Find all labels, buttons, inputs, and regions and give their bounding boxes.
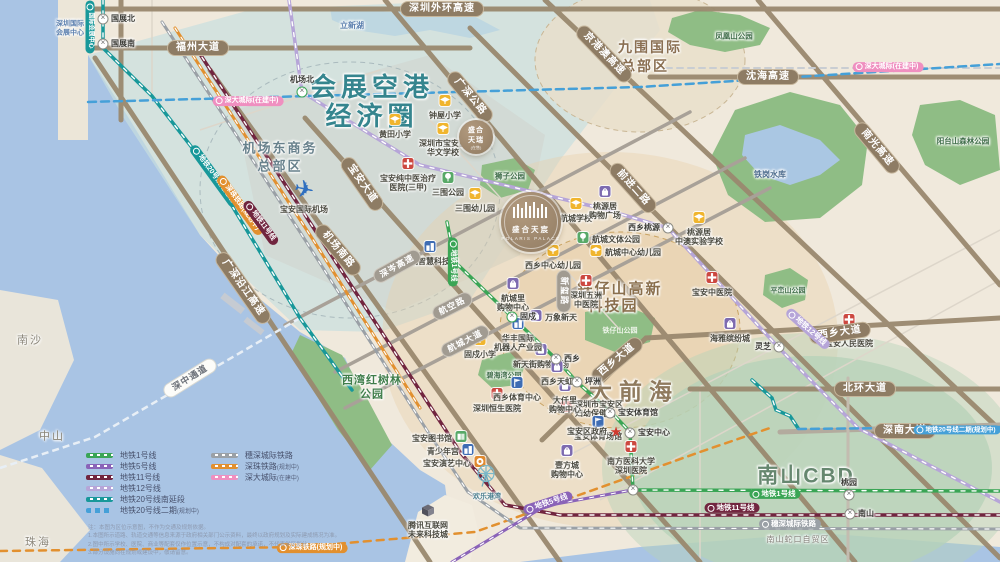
legend-label: 穗深城际铁路 xyxy=(245,450,293,461)
metro-line-badge: 地铁1号线 xyxy=(448,238,458,287)
road-badge: 新玺路 xyxy=(557,270,572,313)
metro-icon xyxy=(762,521,769,528)
poi-park-icon[interactable] xyxy=(577,231,590,249)
station-label: 机场北 xyxy=(290,76,314,84)
legend-column-rail: 穗深城际铁路深珠铁路(规划中)深大城际(在建中) xyxy=(211,450,299,516)
poi-label: 航城里 xyxy=(501,295,525,303)
legend-item: 地铁12号线 xyxy=(86,483,199,493)
map-label: 机场东商务 xyxy=(242,142,317,155)
metro-line-badge: 穗深城际铁路 xyxy=(759,519,821,529)
metro-station[interactable]: ✕ xyxy=(605,408,616,419)
legend-sublabel: (规划中) xyxy=(177,506,199,515)
legend-label: 深大城际 xyxy=(245,472,277,483)
legend-disclaimer: 注：本图为区位示意图，不作为交通及规划依据。1.本图所示道路、轨道交通等信息来源… xyxy=(88,524,340,557)
legend-line-swatch xyxy=(86,464,113,469)
poi-label: 航城学校 xyxy=(560,215,592,223)
station-label: 灵芝 xyxy=(755,343,771,351)
metro-station[interactable]: ✕ xyxy=(98,39,109,50)
road-badge: 沈海高速 xyxy=(737,69,799,85)
metro-station[interactable]: ✕ xyxy=(507,312,518,323)
station-label: 南山 xyxy=(858,510,874,518)
legend-item: 地铁1号线 xyxy=(86,450,199,460)
poi-label: 固戍小学 xyxy=(464,351,496,359)
legend-line-swatch xyxy=(86,508,113,513)
legend-line-swatch xyxy=(86,497,113,502)
metro-icon xyxy=(525,504,534,513)
poi-label: 西乡天虹 xyxy=(541,378,573,386)
map-label: 铁岗水库 xyxy=(754,171,786,179)
metro-line-badge: 国际会展中心 xyxy=(86,0,95,53)
poi-label: 黄田小学 xyxy=(379,131,411,139)
station-label: 宝安中心 xyxy=(638,429,670,437)
poi-label: 西乡中心幼儿园 xyxy=(525,262,581,270)
station-label: 宝安体育馆 xyxy=(618,409,658,417)
poi-mall-icon[interactable] xyxy=(561,444,574,462)
poi-label: 医院(三甲) xyxy=(389,184,426,192)
poi-label: 西乡体育中心 xyxy=(493,394,541,402)
map-label: 平峦山公园 xyxy=(771,288,806,295)
metro-station[interactable]: ✕ xyxy=(844,490,855,501)
poi-label: 航城文体公园 xyxy=(592,236,640,244)
poi-mall-icon[interactable] xyxy=(724,317,737,335)
map-label: 中山 xyxy=(39,432,65,443)
poi-label: 未来科技城 xyxy=(408,531,448,539)
metro-icon xyxy=(752,491,759,498)
poi-label: 深圳五洲 xyxy=(570,292,602,300)
project-name-en: POLARIS PALACE xyxy=(501,236,561,241)
poi-label: 深圳恒生医院 xyxy=(473,405,521,413)
metro-station[interactable]: ✕ xyxy=(551,354,562,365)
poi-hospital-icon[interactable] xyxy=(580,274,593,292)
poi-mall-icon[interactable] xyxy=(599,185,612,203)
metro-station[interactable]: ✕ xyxy=(845,509,856,520)
legend-line-swatch xyxy=(86,475,113,480)
legend-item: 地铁5号线 xyxy=(86,461,199,471)
metro-icon xyxy=(450,241,457,248)
metro-station[interactable]: ✕ xyxy=(297,87,308,98)
metro-line-badge: 地铁11号线 xyxy=(705,503,760,513)
poi-label: 购物广场 xyxy=(589,212,621,220)
poi-building-icon[interactable] xyxy=(424,240,437,258)
metro-icon xyxy=(245,202,255,212)
poi-label: 深圳医院 xyxy=(615,467,647,475)
poi-school-icon[interactable] xyxy=(547,244,560,262)
disclaimer-line: 3.部分设施尚在规划或建设中，敬请留意。 xyxy=(88,549,340,557)
metro-icon xyxy=(191,147,201,157)
sub-project-status: (在售) xyxy=(459,145,493,151)
metro-station[interactable]: ✕ xyxy=(663,223,674,234)
map-label: 南沙 xyxy=(17,336,43,347)
poi-label: 购物中心 xyxy=(549,406,581,414)
metro-icon xyxy=(218,177,228,187)
legend-label: 地铁5号线 xyxy=(120,461,156,472)
disclaimer-line: 注：本图为区位示意图，不作为交通及规划依据。 xyxy=(88,524,340,532)
poi-school-icon[interactable] xyxy=(693,211,706,229)
legend-item: 地铁20号线南延段 xyxy=(86,494,199,504)
map-label: 南山蛇口自贸区 xyxy=(767,536,830,544)
metro-line-badge: 地铁20号线二期(规划中) xyxy=(913,425,1000,434)
metro-station[interactable]: ✕ xyxy=(572,377,583,388)
map-label: 狮子公园 xyxy=(495,172,525,180)
station-label: 国展南 xyxy=(111,40,135,48)
poi-label: 华丰国际 xyxy=(502,335,534,343)
legend-line-swatch xyxy=(211,464,238,469)
poi-school-icon[interactable] xyxy=(590,244,603,262)
poi-school-icon[interactable] xyxy=(469,187,482,205)
poi-label: 中澳实验学校 xyxy=(675,238,723,246)
station-label: 国展北 xyxy=(111,15,135,23)
poi-hospital-icon[interactable] xyxy=(402,157,415,175)
station-label: 坪洲 xyxy=(585,378,601,386)
metro-icon xyxy=(856,64,863,71)
legend-item: 深大城际(在建中) xyxy=(211,472,299,482)
project-marker-polaris-palace[interactable]: 盛合天宸 POLARIS PALACE xyxy=(501,192,561,252)
map-label: 经济圈 xyxy=(325,103,418,129)
map-label: 阳台山森林公园 xyxy=(937,137,990,145)
legend-item: 深珠铁路(规划中) xyxy=(211,461,299,471)
map-label: 珠海 xyxy=(25,538,51,549)
ferris-wheel-icon[interactable] xyxy=(475,464,497,493)
poi-label: 桃源居 xyxy=(687,229,711,237)
legend-label: 地铁1号线 xyxy=(120,450,156,461)
poi-label: 桃源居 xyxy=(593,203,617,211)
tencent-cube-icon[interactable] xyxy=(421,504,435,523)
legend-line-swatch xyxy=(86,486,113,491)
sub-project-name-l2: 天瑞 xyxy=(459,135,493,145)
metro-icon xyxy=(87,3,94,10)
map-label: 欢乐港湾 xyxy=(473,494,501,501)
station-label: 桃园 xyxy=(841,479,857,487)
poi-label: 宝安中医院 xyxy=(692,289,732,297)
poi-flag-icon[interactable] xyxy=(511,376,524,394)
map-label: 西湾红树林 xyxy=(342,376,402,387)
map-label: 公园 xyxy=(360,390,384,401)
poi-mall-icon[interactable] xyxy=(507,277,520,295)
legend-label: 地铁11号线 xyxy=(120,472,160,483)
poi-label: 大仟里 xyxy=(553,397,577,405)
map-label: 会展空港 xyxy=(310,74,434,100)
metro-station[interactable]: ✕ xyxy=(98,14,109,25)
poi-label: 三围公园 xyxy=(432,189,464,197)
legend-label: 地铁12号线 xyxy=(120,483,161,494)
road-badge: 北环大道 xyxy=(834,381,896,397)
metro-icon xyxy=(916,426,923,433)
map-label: 铁仔山公园 xyxy=(603,328,638,335)
metro-icon xyxy=(708,505,715,512)
map-label: 凤凰山公园 xyxy=(715,32,753,40)
poi-school-icon[interactable] xyxy=(439,94,452,112)
metro-icon xyxy=(216,98,223,105)
legend-line-swatch xyxy=(211,475,238,480)
poi-school-icon[interactable] xyxy=(389,113,402,131)
legend-label: 深珠铁路 xyxy=(245,461,277,472)
poi-hospital-icon[interactable] xyxy=(625,440,638,458)
government-star-icon[interactable]: ★ xyxy=(610,424,623,441)
sub-project-name-l1: 盛合 xyxy=(459,125,493,135)
metro-station[interactable]: ✕ xyxy=(628,485,639,496)
project-marker-shenghe-tianrui[interactable]: 盛合 天瑞 (在售) xyxy=(459,120,493,154)
legend-label: 地铁20号线二期 xyxy=(120,505,177,516)
legend-line-swatch xyxy=(86,453,113,458)
map-canvas: 盛合天宸 POLARIS PALACE 盛合 天瑞 (在售) 地铁1号线地铁5号… xyxy=(0,0,1000,562)
legend-item: 地铁11号线 xyxy=(86,472,199,482)
poi-label: 航城中心幼儿园 xyxy=(605,249,661,257)
metro-line-badge: 深大城际(在建中) xyxy=(853,62,924,72)
road-badge: 福州大道 xyxy=(167,40,229,56)
poi-label: 中医院 xyxy=(574,301,598,309)
legend-column-metro: 地铁1号线地铁5号线地铁11号线地铁12号线地铁20号线南延段地铁20号线二期(… xyxy=(86,450,199,516)
disclaimer-line: 2.图中所示学校、医院、商业等配套仅作位置示意，不构成对配套的承诺，不代表学区划… xyxy=(88,541,340,549)
poi-label: 壹方城 xyxy=(555,462,579,470)
road-badge: 深圳外环高速 xyxy=(400,1,484,17)
map-label: 会展中心 xyxy=(56,30,84,37)
poi-label: 宝安纯中医治疗 xyxy=(380,175,436,183)
map-label: 总部区 xyxy=(257,160,302,173)
metro-station[interactable]: ✕ xyxy=(625,428,636,439)
poi-label: 机器人产业园 xyxy=(494,344,542,352)
metro-station[interactable]: ✕ xyxy=(774,342,785,353)
poi-label: 腾讯互联网 xyxy=(408,522,448,530)
legend-label: 地铁20号线南延段 xyxy=(120,494,185,505)
poi-school-icon[interactable] xyxy=(570,197,583,215)
poi-label: 深圳市宝安区 xyxy=(575,401,623,409)
metro-line-badge: 地铁1号线 xyxy=(749,489,800,499)
legend-line-swatch xyxy=(211,453,238,458)
poi-label: 青少年宫 xyxy=(427,448,459,456)
map-label: 深圳国际 xyxy=(56,21,84,28)
poi-label: 购物中心 xyxy=(551,471,583,479)
legend-item: 穗深城际铁路 xyxy=(211,450,299,460)
metro-icon xyxy=(787,310,797,320)
poi-label: 宝安演艺中心 xyxy=(423,460,471,468)
poi-label: 宝安区政府 xyxy=(567,428,607,436)
poi-label: 宝安国际机场 xyxy=(280,206,328,214)
poi-label: 三围幼儿园 xyxy=(455,205,495,213)
station-label: 西乡桃源 xyxy=(628,224,660,232)
disclaimer-line: 1.本图所示道路、轨道交通等信息来源于政府相关部门公示资料，最终以政府规划及实际… xyxy=(88,532,340,540)
poi-label: 万象新天 xyxy=(545,314,577,322)
poi-hospital-icon[interactable] xyxy=(706,271,719,289)
legend-sublabel: (规划中) xyxy=(277,462,299,471)
poi-label: 海雅缤纷城 xyxy=(710,335,750,343)
poi-school-icon[interactable] xyxy=(437,122,450,140)
poi-label: 南方医科大学 xyxy=(607,458,655,466)
poi-park-icon[interactable] xyxy=(442,171,455,189)
map-label: 立新湖 xyxy=(340,22,364,30)
poi-label: 宝安图书馆 xyxy=(412,435,452,443)
poi-label: 钟屋小学 xyxy=(429,112,461,120)
poi-label: 华文学校 xyxy=(427,149,459,157)
legend-item: 地铁20号线二期(规划中) xyxy=(86,505,199,515)
map-label: 九围国际 xyxy=(618,40,682,54)
legend: 地铁1号线地铁5号线地铁11号线地铁12号线地铁20号线南延段地铁20号线二期(… xyxy=(86,450,299,516)
metro-line-badge: 深大城际(在建中) xyxy=(213,96,284,106)
legend-sublabel: (在建中) xyxy=(277,473,299,482)
station-label: 固戍 xyxy=(520,313,536,321)
station-label: 西乡 xyxy=(564,355,580,363)
